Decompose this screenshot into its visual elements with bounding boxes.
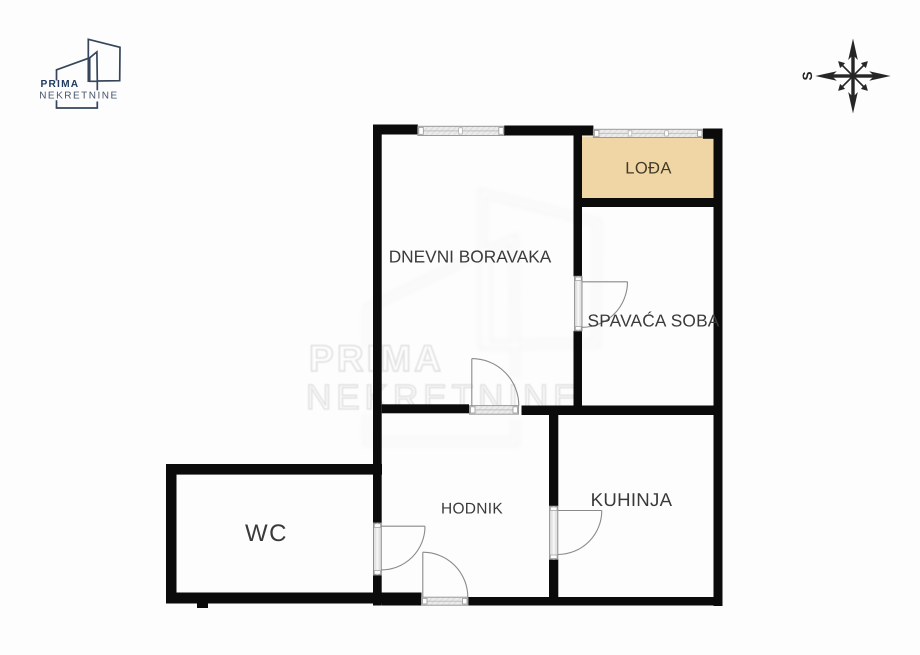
svg-text:SPAVAĆA SOBA: SPAVAĆA SOBA [587, 311, 719, 331]
svg-text:PRIMA: PRIMA [41, 79, 80, 90]
svg-text:WC: WC [245, 520, 288, 547]
svg-text:KUHINJA: KUHINJA [591, 489, 673, 510]
svg-text:S: S [800, 71, 815, 80]
svg-text:DNEVNI BORAVAKA: DNEVNI BORAVAKA [389, 246, 552, 266]
svg-text:HODNIK: HODNIK [441, 501, 503, 518]
svg-text:LOĐA: LOĐA [625, 159, 672, 178]
svg-text:NEKRETNINE: NEKRETNINE [39, 91, 118, 102]
